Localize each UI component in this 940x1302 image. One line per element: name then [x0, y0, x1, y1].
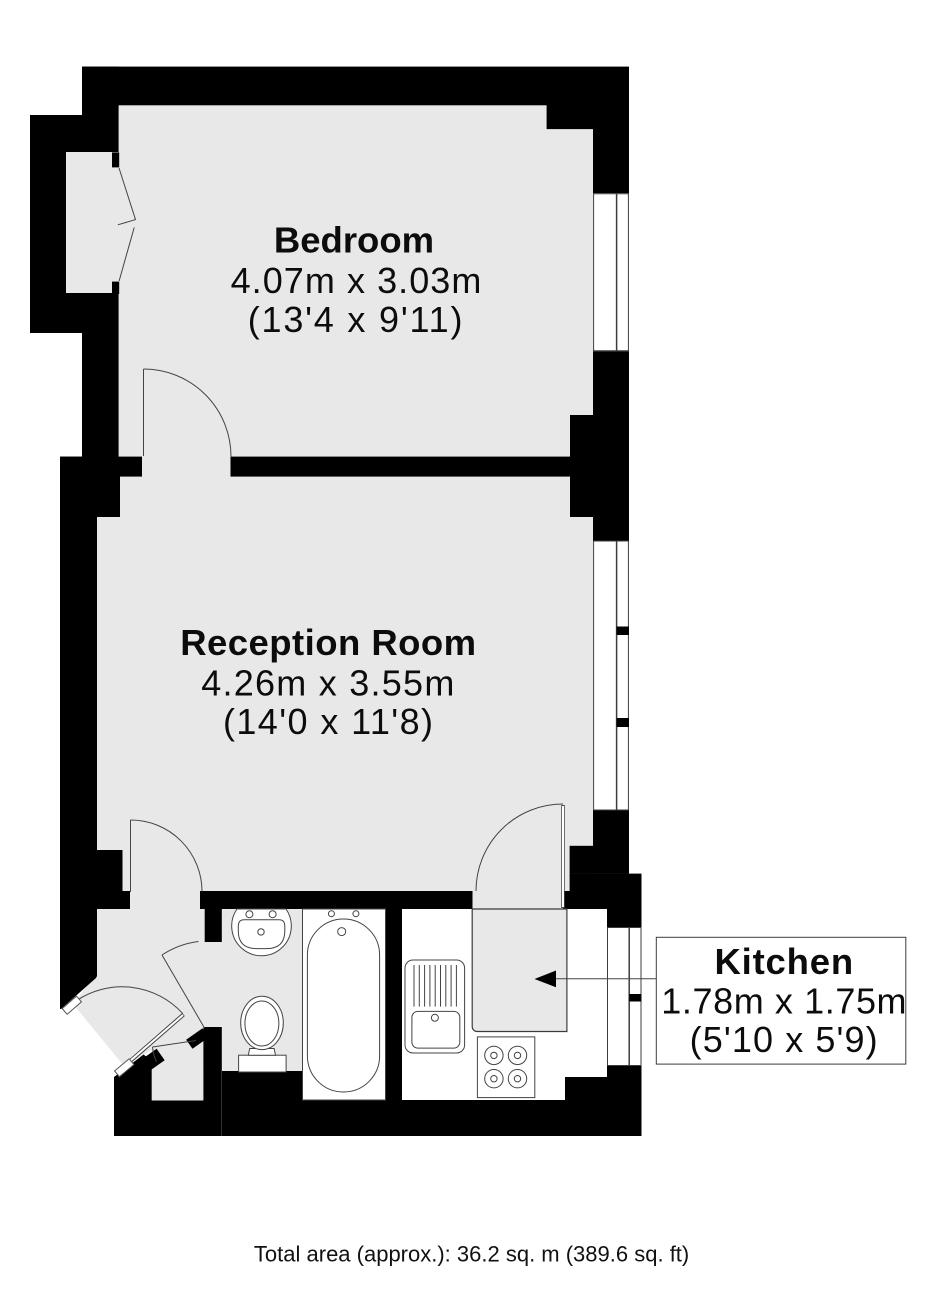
svg-text:(14'0 x 11'8): (14'0 x 11'8) — [223, 701, 434, 742]
svg-text:Bedroom: Bedroom — [274, 219, 434, 260]
svg-text:(13'4 x 9'11): (13'4 x 9'11) — [248, 299, 465, 340]
svg-text:Reception Room: Reception Room — [180, 622, 476, 663]
svg-text:1.78m x 1.75m: 1.78m x 1.75m — [661, 980, 907, 1021]
svg-text:4.07m x 3.03m: 4.07m x 3.03m — [231, 260, 483, 301]
svg-text:(5'10 x 5'9): (5'10 x 5'9) — [690, 1019, 879, 1060]
svg-text:Total area (approx.): 36.2 sq.: Total area (approx.): 36.2 sq. m (389.6 … — [254, 1242, 689, 1267]
svg-text:Kitchen: Kitchen — [714, 941, 853, 982]
svg-text:4.26m x 3.55m: 4.26m x 3.55m — [201, 663, 455, 704]
